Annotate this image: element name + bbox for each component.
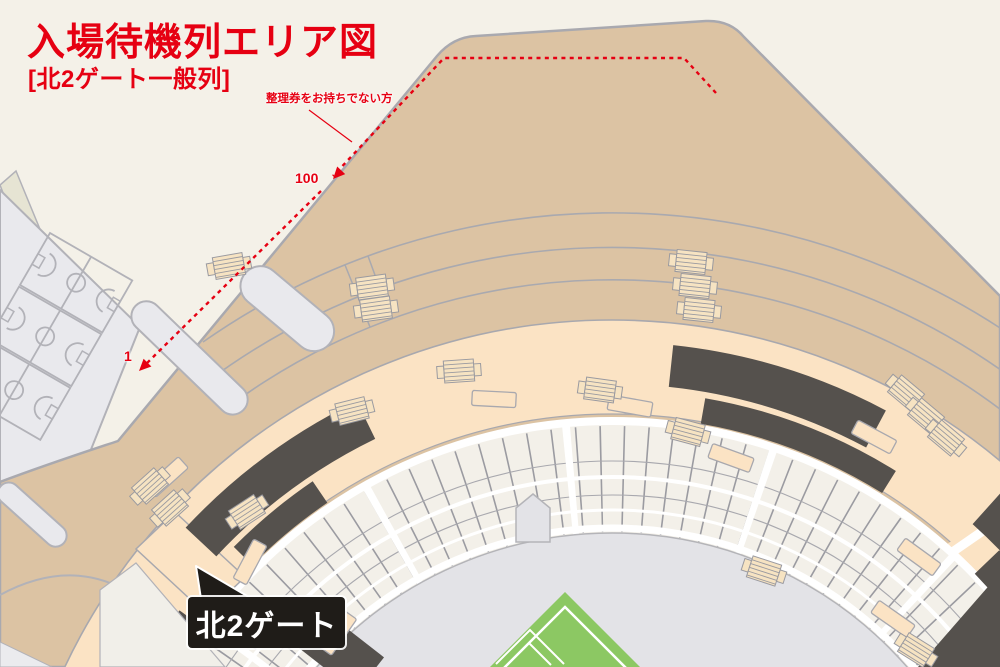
- page-subtitle: [北2ゲート一般列]: [28, 59, 230, 94]
- entrance-waiting-area-map: 入場待機列エリア図 [北2ゲート一般列] 整理券をお持ちでない方 100 1 北…: [0, 0, 1000, 667]
- queue-note-label: 整理券をお持ちでない方: [266, 90, 393, 106]
- queue-start-number: 1: [124, 348, 132, 364]
- queue-end-number: 100: [295, 170, 318, 186]
- stadium-map-graphic: [0, 0, 1000, 667]
- gate-callout: 北2ゲート: [188, 597, 345, 648]
- page-title: 入場待機列エリア図: [27, 11, 378, 66]
